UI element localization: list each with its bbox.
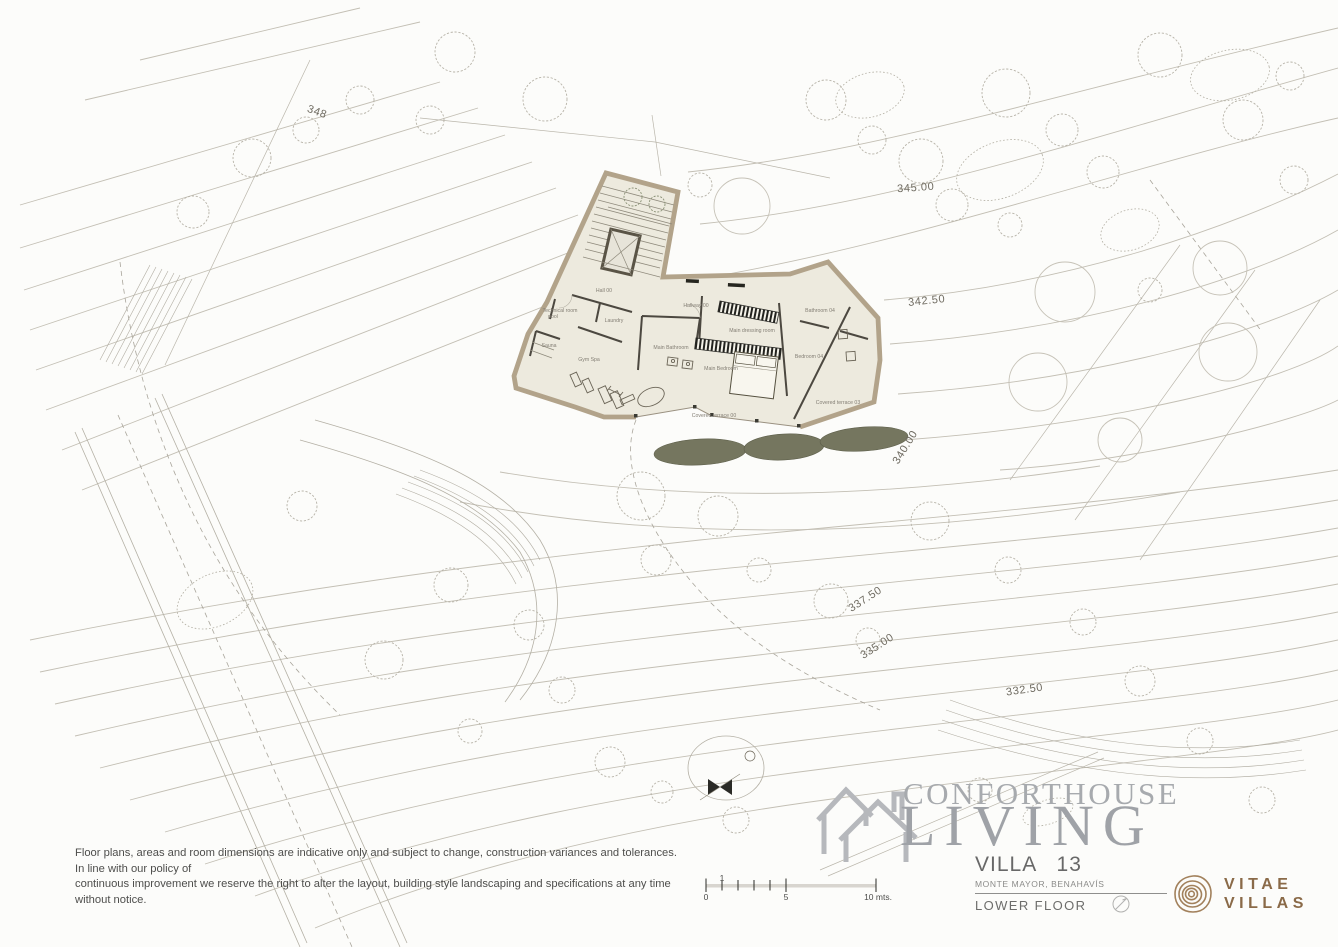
survey-marker xyxy=(688,736,764,800)
title-divider xyxy=(975,893,1167,894)
room-label: pool xyxy=(548,314,558,320)
elevation-label: 345.00 xyxy=(897,181,935,196)
floor-label: LOWER FLOOR xyxy=(975,898,1175,913)
vitae-villas-logo: VITAE VILLAS xyxy=(1170,871,1308,917)
villa-title: VILLA 13 xyxy=(975,853,1175,877)
scale-bar: 01510 mts. xyxy=(704,873,892,902)
room-label: Bedroom 04 xyxy=(795,354,823,360)
disclaimer-note: Floor plans, areas and room dimensions a… xyxy=(75,846,685,908)
scale-bar-label: 10 mts. xyxy=(864,892,892,902)
room-label: Bathroom 04 xyxy=(805,308,835,314)
threshold xyxy=(686,279,699,283)
room-label: Main dressing room xyxy=(729,328,775,334)
scale-bar-label: 1 xyxy=(720,873,725,883)
room-label: Gym Spa xyxy=(578,357,600,363)
room-label: Hallway 00 xyxy=(683,303,708,309)
room-label: Covered terrace 03 xyxy=(816,400,861,406)
scale-bar-label: 5 xyxy=(784,892,789,902)
elevation-label: 337.50 xyxy=(846,584,884,614)
logo-word-top: VITAE xyxy=(1224,875,1308,894)
elevation-label: 342.50 xyxy=(908,293,946,309)
watermark-word: LIVING xyxy=(900,792,1154,859)
disclaimer-line-2: continuous improvement we reserve the ri… xyxy=(75,877,685,908)
disclaimer-line-1: Floor plans, areas and room dimensions a… xyxy=(75,846,685,877)
room-label: Covered terrace 00 xyxy=(692,413,737,419)
villa-floor-plan xyxy=(514,173,880,428)
logo-wordmark: VITAE VILLAS xyxy=(1224,875,1308,913)
hedge-rows xyxy=(653,424,908,467)
bed xyxy=(730,352,779,399)
wood-rings-icon xyxy=(1170,871,1216,917)
logo-word-bottom: VILLAS xyxy=(1224,894,1308,913)
room-label: Main Bathroom xyxy=(653,345,688,351)
floor-slab xyxy=(514,173,880,427)
trees xyxy=(168,32,1308,833)
room-label: Laundry xyxy=(605,318,624,324)
north-arrow-icon xyxy=(1110,893,1132,915)
room-label: Hall 00 xyxy=(596,288,612,294)
elevation-label: 348 xyxy=(306,103,329,121)
scale-bar-label: 0 xyxy=(704,892,709,902)
room-label: Main Bedroom xyxy=(704,366,738,372)
elevation-label: 332.50 xyxy=(1005,681,1044,698)
villa-location: MONTE MAYOR, BENAHAVÍS xyxy=(975,879,1175,889)
site-plan-page: { "title_block": { "title": "VILLA 13", … xyxy=(0,0,1338,947)
room-label: Sauna xyxy=(541,343,556,349)
elevation-label: 335.00 xyxy=(858,631,896,661)
title-block: VILLA 13 MONTE MAYOR, BENAHAVÍS LOWER FL… xyxy=(975,853,1175,913)
